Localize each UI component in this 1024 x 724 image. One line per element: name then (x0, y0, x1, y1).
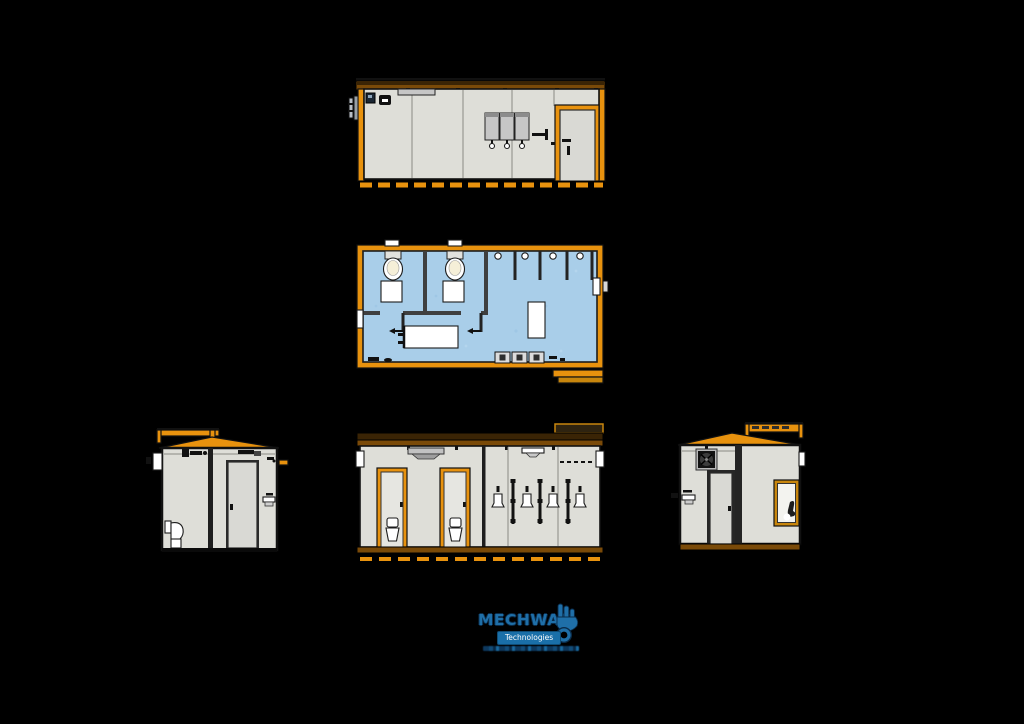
washbasin-counter (398, 326, 458, 348)
floor-line (162, 548, 277, 552)
exterior-handle (279, 460, 288, 465)
base-rail (358, 181, 605, 189)
partition-wall (735, 445, 742, 544)
door-handle (562, 139, 571, 142)
right-end-section-view (668, 418, 820, 560)
door-handle (400, 502, 403, 507)
louver-vent-right (596, 451, 604, 467)
window-plan (593, 278, 600, 295)
cubicle-door (377, 468, 407, 547)
logo-subtitle-text: Technologies (505, 633, 553, 642)
cistern-vent (385, 240, 399, 246)
logo-tagline-bar (483, 646, 579, 651)
floor-plan-view (346, 236, 620, 388)
toilet-plan (384, 251, 403, 280)
partition-wall (482, 446, 486, 547)
window (774, 480, 799, 526)
louver-vent-left (356, 451, 364, 467)
roof-hatch (555, 424, 603, 433)
floor-drain (368, 357, 379, 361)
corner-post-left (358, 89, 364, 181)
corner-post-right (599, 89, 605, 181)
cubicle-door (440, 468, 470, 547)
electrical-box (366, 93, 375, 103)
entry-threshold (553, 370, 603, 383)
door-stop (560, 358, 565, 361)
vent-grille (398, 89, 435, 95)
door-handle (728, 506, 731, 511)
left-end-section-view (146, 420, 298, 560)
base-rail (357, 547, 603, 559)
shower-tray (443, 281, 464, 302)
exhaust-fan-icon (696, 445, 717, 470)
roof-rail (745, 422, 803, 438)
roof-slope (678, 433, 801, 445)
interior-door (226, 460, 259, 550)
sink-units (495, 352, 544, 363)
water-meter (348, 96, 358, 120)
bench-plan (528, 302, 545, 338)
door-stop (549, 356, 557, 359)
interior-door (707, 470, 735, 544)
exterior-bracket (146, 457, 151, 464)
shower-tray (381, 281, 402, 302)
exterior-bracket (671, 493, 678, 498)
roof-slope (159, 437, 279, 448)
partition-wall (208, 448, 213, 550)
long-section-view (346, 418, 620, 570)
rear-elevation-view (346, 76, 610, 196)
roof-edge (357, 433, 603, 446)
wall-vent-icon (379, 95, 391, 105)
company-logo: MECHWAT Technologies (470, 600, 610, 662)
base-rail (680, 544, 800, 550)
louver-vent (153, 453, 162, 470)
logo-subtitle-badge: Technologies (497, 631, 561, 645)
floor-drain (384, 358, 392, 362)
cistern-units (485, 113, 529, 149)
toilet-plan (446, 251, 465, 280)
door-handle (463, 502, 466, 507)
door-lock (567, 146, 570, 155)
door-handle (230, 504, 233, 510)
louver-plan (357, 310, 363, 328)
window-tab (603, 281, 608, 292)
entry-door (555, 105, 599, 181)
cistern-vent (448, 240, 462, 246)
louver-vent (799, 452, 805, 466)
